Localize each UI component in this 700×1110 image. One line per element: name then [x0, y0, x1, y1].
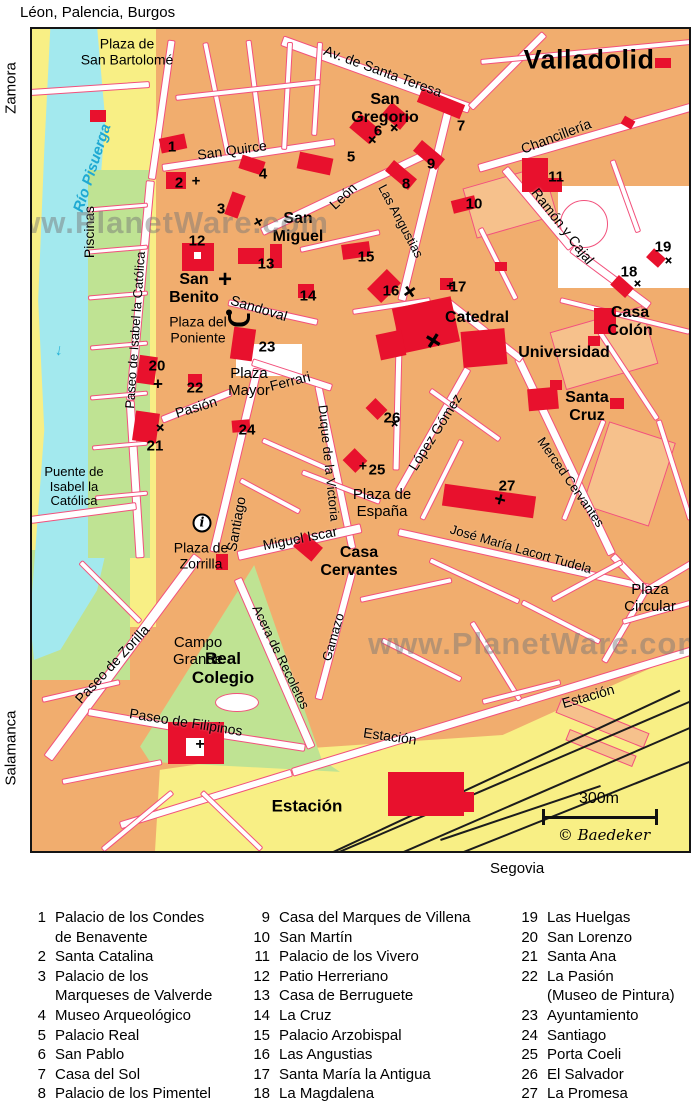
street-label: Chancillería — [519, 115, 594, 156]
legend-item-number: 23 — [514, 1006, 538, 1026]
poi-number: 24 — [239, 423, 256, 438]
street-label: López Gómez — [405, 391, 465, 473]
street-label: San Quirce — [196, 137, 268, 163]
legend-item-number: 13 — [246, 986, 270, 1006]
legend-item-label: Santa Ana — [547, 947, 616, 967]
poi-number: 18 — [621, 265, 638, 280]
place-label: SantaCruz — [565, 389, 609, 425]
legend-item: 6San Pablo — [22, 1045, 212, 1065]
street-label: Paseo de Filipinos — [128, 705, 244, 739]
legend-item-number: 5 — [22, 1026, 46, 1046]
legend-item-number: 17 — [246, 1065, 270, 1085]
city-map: ++++++++++++++++ 12345678910111213141516… — [30, 27, 691, 853]
legend-item-number: 24 — [514, 1026, 538, 1046]
legend-item-number: 11 — [246, 947, 270, 967]
poi-number: 26 — [384, 411, 401, 426]
place-label: Plaza deZorrilla — [174, 540, 228, 571]
legend-item: 3Palacio de los — [22, 967, 212, 987]
place-label: SanGregorio — [351, 91, 419, 127]
legend-item: 25Porta Coeli — [514, 1045, 675, 1065]
edge-label-segovia: Segovia — [490, 860, 544, 877]
poi-number: 25 — [369, 463, 386, 478]
legend-item-number: 7 — [22, 1065, 46, 1085]
legend-item-label: La Promesa — [547, 1084, 628, 1104]
scale-bar — [543, 816, 657, 819]
legend-item-label: Patio Herreriano — [279, 967, 388, 987]
legend-item-label: San Lorenzo — [547, 928, 632, 948]
legend-item: 15Palacio Arzobispal — [246, 1026, 471, 1046]
street-label: Las Angustias — [375, 182, 426, 261]
poi-number: 17 — [450, 280, 467, 295]
poi-number: 14 — [300, 289, 317, 304]
place-label: CasaColón — [607, 304, 652, 340]
legend-item-label: Las Angustias — [279, 1045, 372, 1065]
poi-number: 13 — [258, 257, 275, 272]
legend-item-label: San Pablo — [55, 1045, 124, 1065]
tourist-info-icon: i — [193, 514, 212, 533]
legend-item: 22La Pasión — [514, 967, 675, 987]
legend-item: 8Palacio de los Pimentel — [22, 1084, 212, 1104]
legend-item: 17Santa María la Antigua — [246, 1065, 471, 1085]
legend-item: 20San Lorenzo — [514, 928, 675, 948]
poi-number: 27 — [499, 479, 516, 494]
legend-item: 4Museo Arqueológico — [22, 1006, 212, 1026]
edge-label-zamora: Zamora — [3, 62, 20, 114]
place-label: Estación — [272, 796, 343, 815]
edge-label-north: Léon, Palencia, Burgos — [20, 4, 175, 21]
street-label: Merced Cervantes — [534, 434, 607, 530]
legend-column: 1Palacio de los Condesde Benavente2Santa… — [22, 908, 212, 1104]
legend-item-number: 21 — [514, 947, 538, 967]
poi-number: 5 — [347, 150, 355, 165]
poi-number: 10 — [466, 197, 483, 212]
legend-item-number: 4 — [22, 1006, 46, 1026]
legend-item-label: Casa del Marques de Villena — [279, 908, 471, 928]
legend-item-label: Palacio de los Condes — [55, 908, 204, 928]
legend-item: 13Casa de Berruguete — [246, 986, 471, 1006]
place-label: Plaza delPoniente — [169, 314, 227, 345]
legend-item-number: 2 — [22, 947, 46, 967]
legend-item-label: Palacio Arzobispal — [279, 1026, 402, 1046]
legend-item-label: La Pasión — [547, 967, 614, 987]
legend-item: 10San Martín — [246, 928, 471, 948]
legend-item-label: El Salvador — [547, 1065, 624, 1085]
legend-item-number: 20 — [514, 928, 538, 948]
legend-item-number: 9 — [246, 908, 270, 928]
legend-item: 5Palacio Real — [22, 1026, 212, 1046]
street-label: José María Lacort Tudela — [448, 522, 593, 577]
legend-item-label: Santa María la Antigua — [279, 1065, 431, 1085]
street-label: Estación — [560, 681, 616, 711]
map-title: Valladolid — [523, 45, 654, 76]
street-label: Acera de Recoletos — [249, 603, 312, 712]
copyright-notice: © Baedeker — [558, 826, 650, 844]
street-label: Ramón y Cajal — [528, 185, 597, 267]
street-label: Gamazo — [319, 611, 347, 662]
poi-number: 4 — [259, 167, 267, 182]
legend-item-label: Palacio Real — [55, 1026, 139, 1046]
place-label: CasaCervantes — [320, 544, 397, 580]
legend-item: 16Las Angustias — [246, 1045, 471, 1065]
legend-item: 12Patio Herreriano — [246, 967, 471, 987]
scale-bar-tick — [542, 809, 545, 825]
legend-item: Marqueses de Valverde — [22, 986, 212, 1006]
legend-item-number: 18 — [246, 1084, 270, 1104]
legend-item: 14La Cruz — [246, 1006, 471, 1026]
legend-item-label: (Museo de Pintura) — [547, 986, 675, 1006]
scale-bar-tick — [655, 809, 658, 825]
place-label: SanBenito — [169, 271, 219, 307]
legend-item: 1Palacio de los Condes — [22, 908, 212, 928]
legend-item: (Museo de Pintura) — [514, 986, 675, 1006]
poi-number: 21 — [147, 439, 164, 454]
legend-item: de Benavente — [22, 928, 212, 948]
legend-item: 11Palacio de los Vivero — [246, 947, 471, 967]
poi-number: 22 — [187, 381, 204, 396]
watermark-text: www.PlanetWare.com — [368, 626, 691, 662]
legend-item-label: Palacio de los — [55, 967, 148, 987]
legend-item-number: 15 — [246, 1026, 270, 1046]
legend-item-number: 22 — [514, 967, 538, 987]
legend-item-label: Santa Catalina — [55, 947, 153, 967]
place-label: Puente deIsabel laCatólica — [44, 465, 103, 509]
legend-item-number: 6 — [22, 1045, 46, 1065]
legend-item-number: 19 — [514, 908, 538, 928]
scale-label: 300m — [579, 790, 619, 808]
legend-item-label: Ayuntamiento — [547, 1006, 638, 1026]
poi-number: 20 — [149, 359, 166, 374]
legend-item-label: San Martín — [279, 928, 352, 948]
street-label: Paseo de Zorilla — [72, 622, 153, 707]
legend-item-label: La Cruz — [279, 1006, 332, 1026]
street-label: Ferrari — [268, 368, 312, 394]
legend-item-label: Santiago — [547, 1026, 606, 1046]
edge-label-salamanca: Salamanca — [3, 710, 20, 785]
legend-item: 23Ayuntamiento — [514, 1006, 675, 1026]
legend-item-number: 8 — [22, 1084, 46, 1104]
legend-item-number: 10 — [246, 928, 270, 948]
map-labels-layer: 1234567891011121314151617181920212223242… — [32, 29, 689, 851]
legend-item-label: Marqueses de Valverde — [55, 986, 212, 1006]
legend-item-number: 3 — [22, 967, 46, 987]
legend-item-label: Casa del Sol — [55, 1065, 140, 1085]
legend-item-label: Palacio de los Pimentel — [55, 1084, 211, 1104]
place-label: CampoGrande — [173, 635, 223, 669]
legend-item-label: Porta Coeli — [547, 1045, 621, 1065]
legend-item-label: La Magdalena — [279, 1084, 374, 1104]
poi-number: 2 — [175, 176, 183, 191]
poi-number: 8 — [402, 177, 410, 192]
legend-item-number: 14 — [246, 1006, 270, 1026]
legend-item: 18La Magdalena — [246, 1084, 471, 1104]
place-label: Plaza deEspaña — [353, 487, 411, 521]
legend-item-number: 16 — [246, 1045, 270, 1065]
legend-item-label: Museo Arqueológico — [55, 1006, 191, 1026]
legend-item: 27La Promesa — [514, 1084, 675, 1104]
legend-item: 2Santa Catalina — [22, 947, 212, 967]
poi-number: 19 — [655, 240, 672, 255]
legend-item: 7Casa del Sol — [22, 1065, 212, 1085]
street-label: Duque de la Victoria — [315, 404, 342, 522]
poi-number: 23 — [259, 340, 276, 355]
street-label: Paseo de Isabel la Católica — [122, 251, 148, 409]
legend-item-number: 12 — [246, 967, 270, 987]
street-label: Pasión — [173, 393, 219, 421]
legend-item-number: 25 — [514, 1045, 538, 1065]
legend-item-number: 1 — [22, 908, 46, 928]
legend-item-number: 27 — [514, 1084, 538, 1104]
legend-item: 26El Salvador — [514, 1065, 675, 1085]
legend-item-label: Casa de Berruguete — [279, 986, 413, 1006]
legend-item-number: 26 — [514, 1065, 538, 1085]
poi-number: 1 — [168, 140, 176, 155]
place-label: Universidad — [518, 344, 610, 362]
street-label: Estación — [362, 724, 417, 747]
poi-number: 11 — [548, 170, 564, 185]
legend-item-label: Palacio de los Vivero — [279, 947, 419, 967]
place-label: PlazaCircular — [624, 582, 676, 616]
legend-item-label: de Benavente — [55, 928, 148, 948]
street-label: León — [326, 180, 360, 213]
poi-number: 7 — [457, 119, 465, 134]
place-label: Catedral — [445, 309, 509, 327]
legend-item: 19Las Huelgas — [514, 908, 675, 928]
legend-item: 24Santiago — [514, 1026, 675, 1046]
poi-number: 16 — [383, 284, 400, 299]
place-label: Plaza deSan Bartolomé — [81, 36, 174, 67]
legend-item: 9Casa del Marques de Villena — [246, 908, 471, 928]
legend-column: 9Casa del Marques de Villena10San Martín… — [246, 908, 471, 1104]
legend-item-label: Las Huelgas — [547, 908, 630, 928]
place-label: PlazaMayor — [228, 366, 270, 400]
poi-number: 15 — [358, 250, 375, 265]
legend-column: 19Las Huelgas20San Lorenzo21Santa Ana22L… — [514, 908, 675, 1104]
poi-number: 9 — [427, 157, 435, 172]
legend-item: 21Santa Ana — [514, 947, 675, 967]
